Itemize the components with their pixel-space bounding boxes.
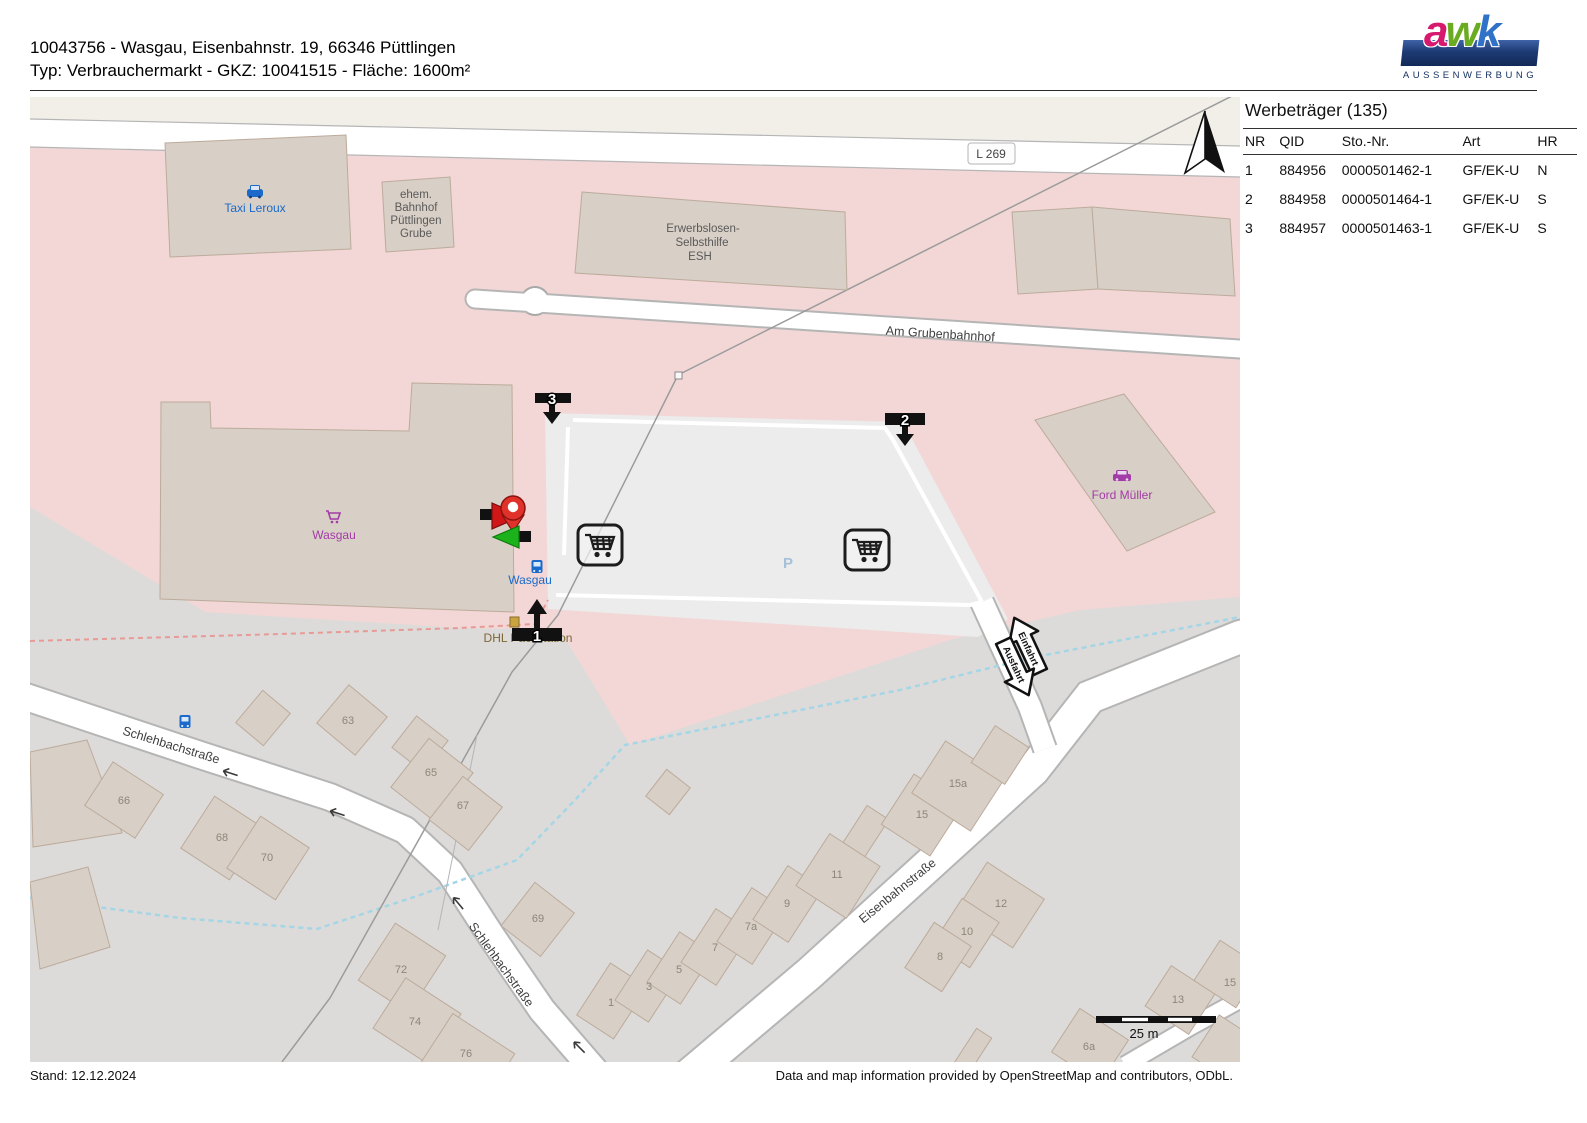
col-art: Art	[1460, 129, 1535, 155]
report-header: 10043756 - Wasgau, Eisenbahnstr. 19, 663…	[30, 36, 470, 82]
housenumber: 67	[457, 800, 469, 812]
l269-badge: L 269	[968, 143, 1015, 164]
cell-sto: 0000501464-1	[1340, 184, 1461, 213]
wasgau-shop-label: Wasgau	[312, 528, 356, 542]
table-row: 2 884958 0000501464-1 GF/EK-U S	[1243, 184, 1577, 213]
marker-number: 1	[533, 628, 541, 645]
housenumber: 63	[342, 715, 354, 727]
cell-qid: 884958	[1277, 184, 1339, 213]
cell-art: GF/EK-U	[1460, 213, 1535, 242]
header-line1: 10043756 - Wasgau, Eisenbahnstr. 19, 663…	[30, 36, 470, 59]
l269-label: L 269	[976, 147, 1006, 161]
cell-nr: 2	[1243, 184, 1277, 213]
housenumber: 6a	[1083, 1041, 1096, 1053]
packstation-icon	[510, 617, 519, 627]
housenumber: 7a	[745, 921, 758, 933]
werbetraeger-table: NR QID Sto.-Nr. Art HR 1 884956 00005014…	[1243, 128, 1577, 242]
map-canvas: 63 65 67 66 68 70 69 72 74 76 1 3 5 7 7a…	[30, 97, 1240, 1062]
esh-label-line: Erwerbslosen-	[666, 223, 740, 235]
bahnhof-label-line: Bahnhof	[395, 202, 439, 214]
housenumber: 9	[784, 898, 790, 910]
housenumber: 5	[676, 964, 682, 976]
scale-label: 25 m	[1130, 1026, 1159, 1041]
table-row: 1 884956 0000501462-1 GF/EK-U N	[1243, 155, 1577, 185]
housenumber: 1	[608, 997, 614, 1009]
logo-letter-w: w	[1445, 7, 1476, 56]
werbetraeger-panel: Werbeträger (135) NR QID Sto.-Nr. Art HR…	[1243, 100, 1577, 242]
bahnhof-label-line: Grube	[400, 228, 432, 240]
marker-number: 2	[901, 412, 909, 429]
cell-hr: S	[1535, 213, 1577, 242]
panel-title: Werbeträger (135)	[1245, 100, 1577, 121]
awk-logo-word: awk	[1424, 10, 1498, 54]
housenumber: 70	[261, 852, 273, 864]
awk-logo: awk AUSSENWERBUNG	[1402, 18, 1538, 88]
wasgau-stop-label: Wasgau	[508, 573, 552, 587]
bus-stop-icon	[180, 715, 191, 728]
housenumber: 11	[831, 869, 842, 881]
housenumber: 66	[118, 795, 130, 807]
esh-label-line: Selbsthilfe	[675, 237, 728, 249]
housenumber: 13	[1172, 994, 1184, 1006]
building	[1012, 207, 1098, 294]
housenumber: 69	[532, 913, 544, 925]
housenumber: 15	[916, 809, 928, 821]
awk-logo-subtitle: AUSSENWERBUNG	[1402, 70, 1538, 81]
housenumber: 65	[425, 767, 437, 779]
ford-mueller-label: Ford Müller	[1092, 488, 1153, 502]
col-hr: HR	[1535, 129, 1577, 155]
col-nr: NR	[1243, 129, 1277, 155]
cell-art: GF/EK-U	[1460, 184, 1535, 213]
housenumber: 7	[712, 942, 718, 954]
footer-attribution: Data and map information provided by Ope…	[30, 1068, 1233, 1083]
housenumber: 15	[1224, 977, 1236, 989]
housenumber: 74	[409, 1016, 421, 1028]
building	[1092, 207, 1235, 296]
taxi-leroux-label: Taxi Leroux	[224, 201, 285, 215]
col-sto: Sto.-Nr.	[1340, 129, 1461, 155]
cell-art: GF/EK-U	[1460, 155, 1535, 185]
esh-label-line: ESH	[688, 251, 712, 263]
cart-icon	[845, 530, 889, 570]
housenumber: 76	[460, 1048, 472, 1060]
table-header-row: NR QID Sto.-Nr. Art HR	[1243, 129, 1577, 155]
marker-number: 3	[548, 391, 556, 408]
table-row: 3 884957 0000501463-1 GF/EK-U S	[1243, 213, 1577, 242]
parking-label: P	[783, 555, 793, 572]
bus-stop-icon	[532, 560, 543, 573]
boundary-node	[675, 372, 682, 379]
housenumber: 12	[995, 898, 1007, 910]
cell-qid: 884956	[1277, 155, 1339, 185]
bahnhof-label-line: ehem.	[400, 189, 432, 201]
report-page: 10043756 - Wasgau, Eisenbahnstr. 19, 663…	[0, 0, 1587, 1123]
housenumber: 68	[216, 832, 228, 844]
header-line2: Typ: Verbrauchermarkt - GKZ: 10041515 - …	[30, 59, 470, 82]
housenumber: 10	[961, 926, 973, 938]
header-divider	[30, 90, 1537, 91]
logo-letter-a: a	[1424, 7, 1445, 56]
logo-letter-k: k	[1477, 7, 1498, 56]
cell-nr: 3	[1243, 213, 1277, 242]
housenumber: 15a	[949, 778, 968, 790]
housenumber: 3	[646, 981, 652, 993]
cell-sto: 0000501462-1	[1340, 155, 1461, 185]
cell-qid: 884957	[1277, 213, 1339, 242]
cell-nr: 1	[1243, 155, 1277, 185]
col-qid: QID	[1277, 129, 1339, 155]
housenumber: 8	[937, 951, 943, 963]
housenumber: 72	[395, 964, 407, 976]
bahnhof-label-line: Püttlingen	[390, 215, 441, 227]
cell-hr: S	[1535, 184, 1577, 213]
cart-icon	[578, 525, 622, 565]
cell-sto: 0000501463-1	[1340, 213, 1461, 242]
cell-hr: N	[1535, 155, 1577, 185]
